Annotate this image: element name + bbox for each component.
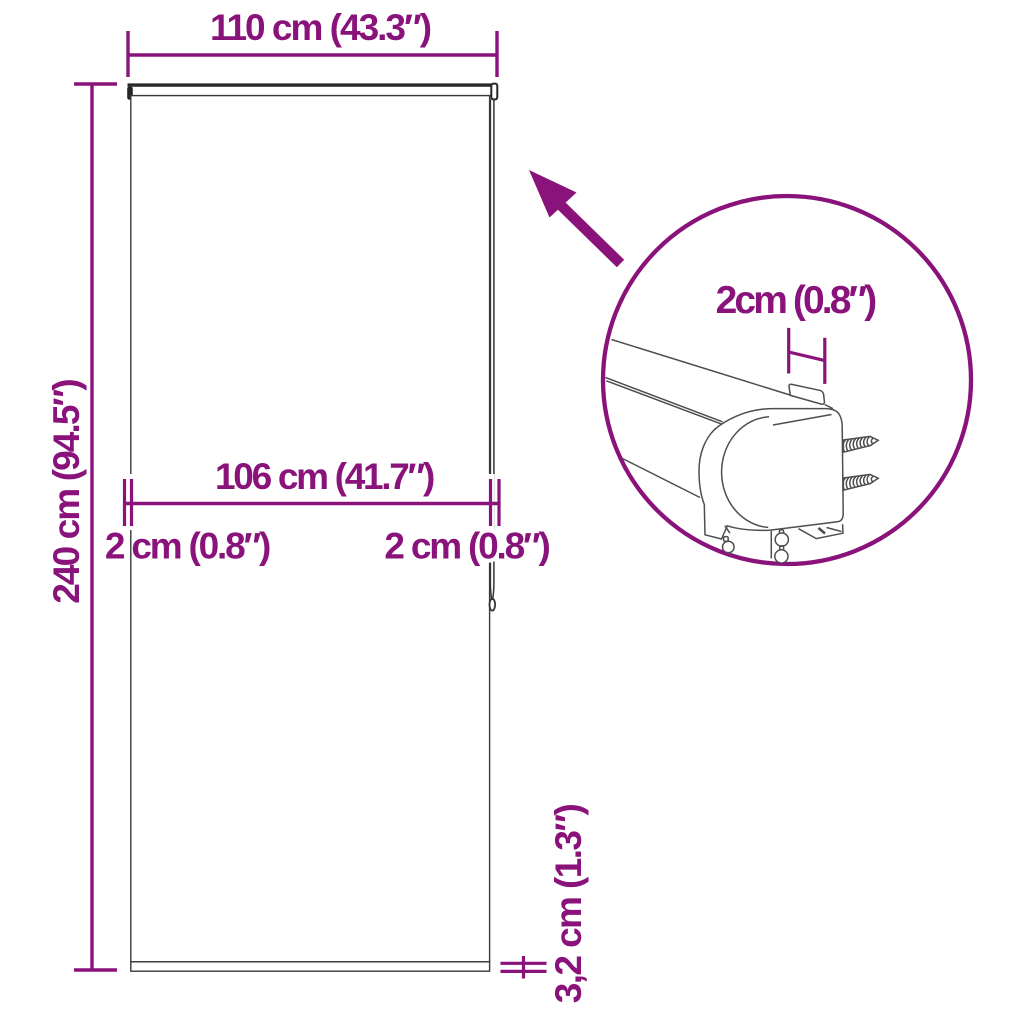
svg-text:3,2 cm (1.3″): 3,2 cm (1.3″) [548, 804, 589, 1003]
svg-text:2cm (0.8″): 2cm (0.8″) [716, 279, 877, 322]
svg-text:240 cm (94.5″): 240 cm (94.5″) [46, 380, 87, 604]
svg-text:2 cm (0.8″): 2 cm (0.8″) [384, 526, 549, 567]
svg-text:2 cm (0.8″): 2 cm (0.8″) [105, 526, 270, 567]
svg-text:110 cm (43.3″): 110 cm (43.3″) [210, 7, 431, 48]
svg-text:106 cm (41.7″): 106 cm (41.7″) [215, 456, 434, 497]
